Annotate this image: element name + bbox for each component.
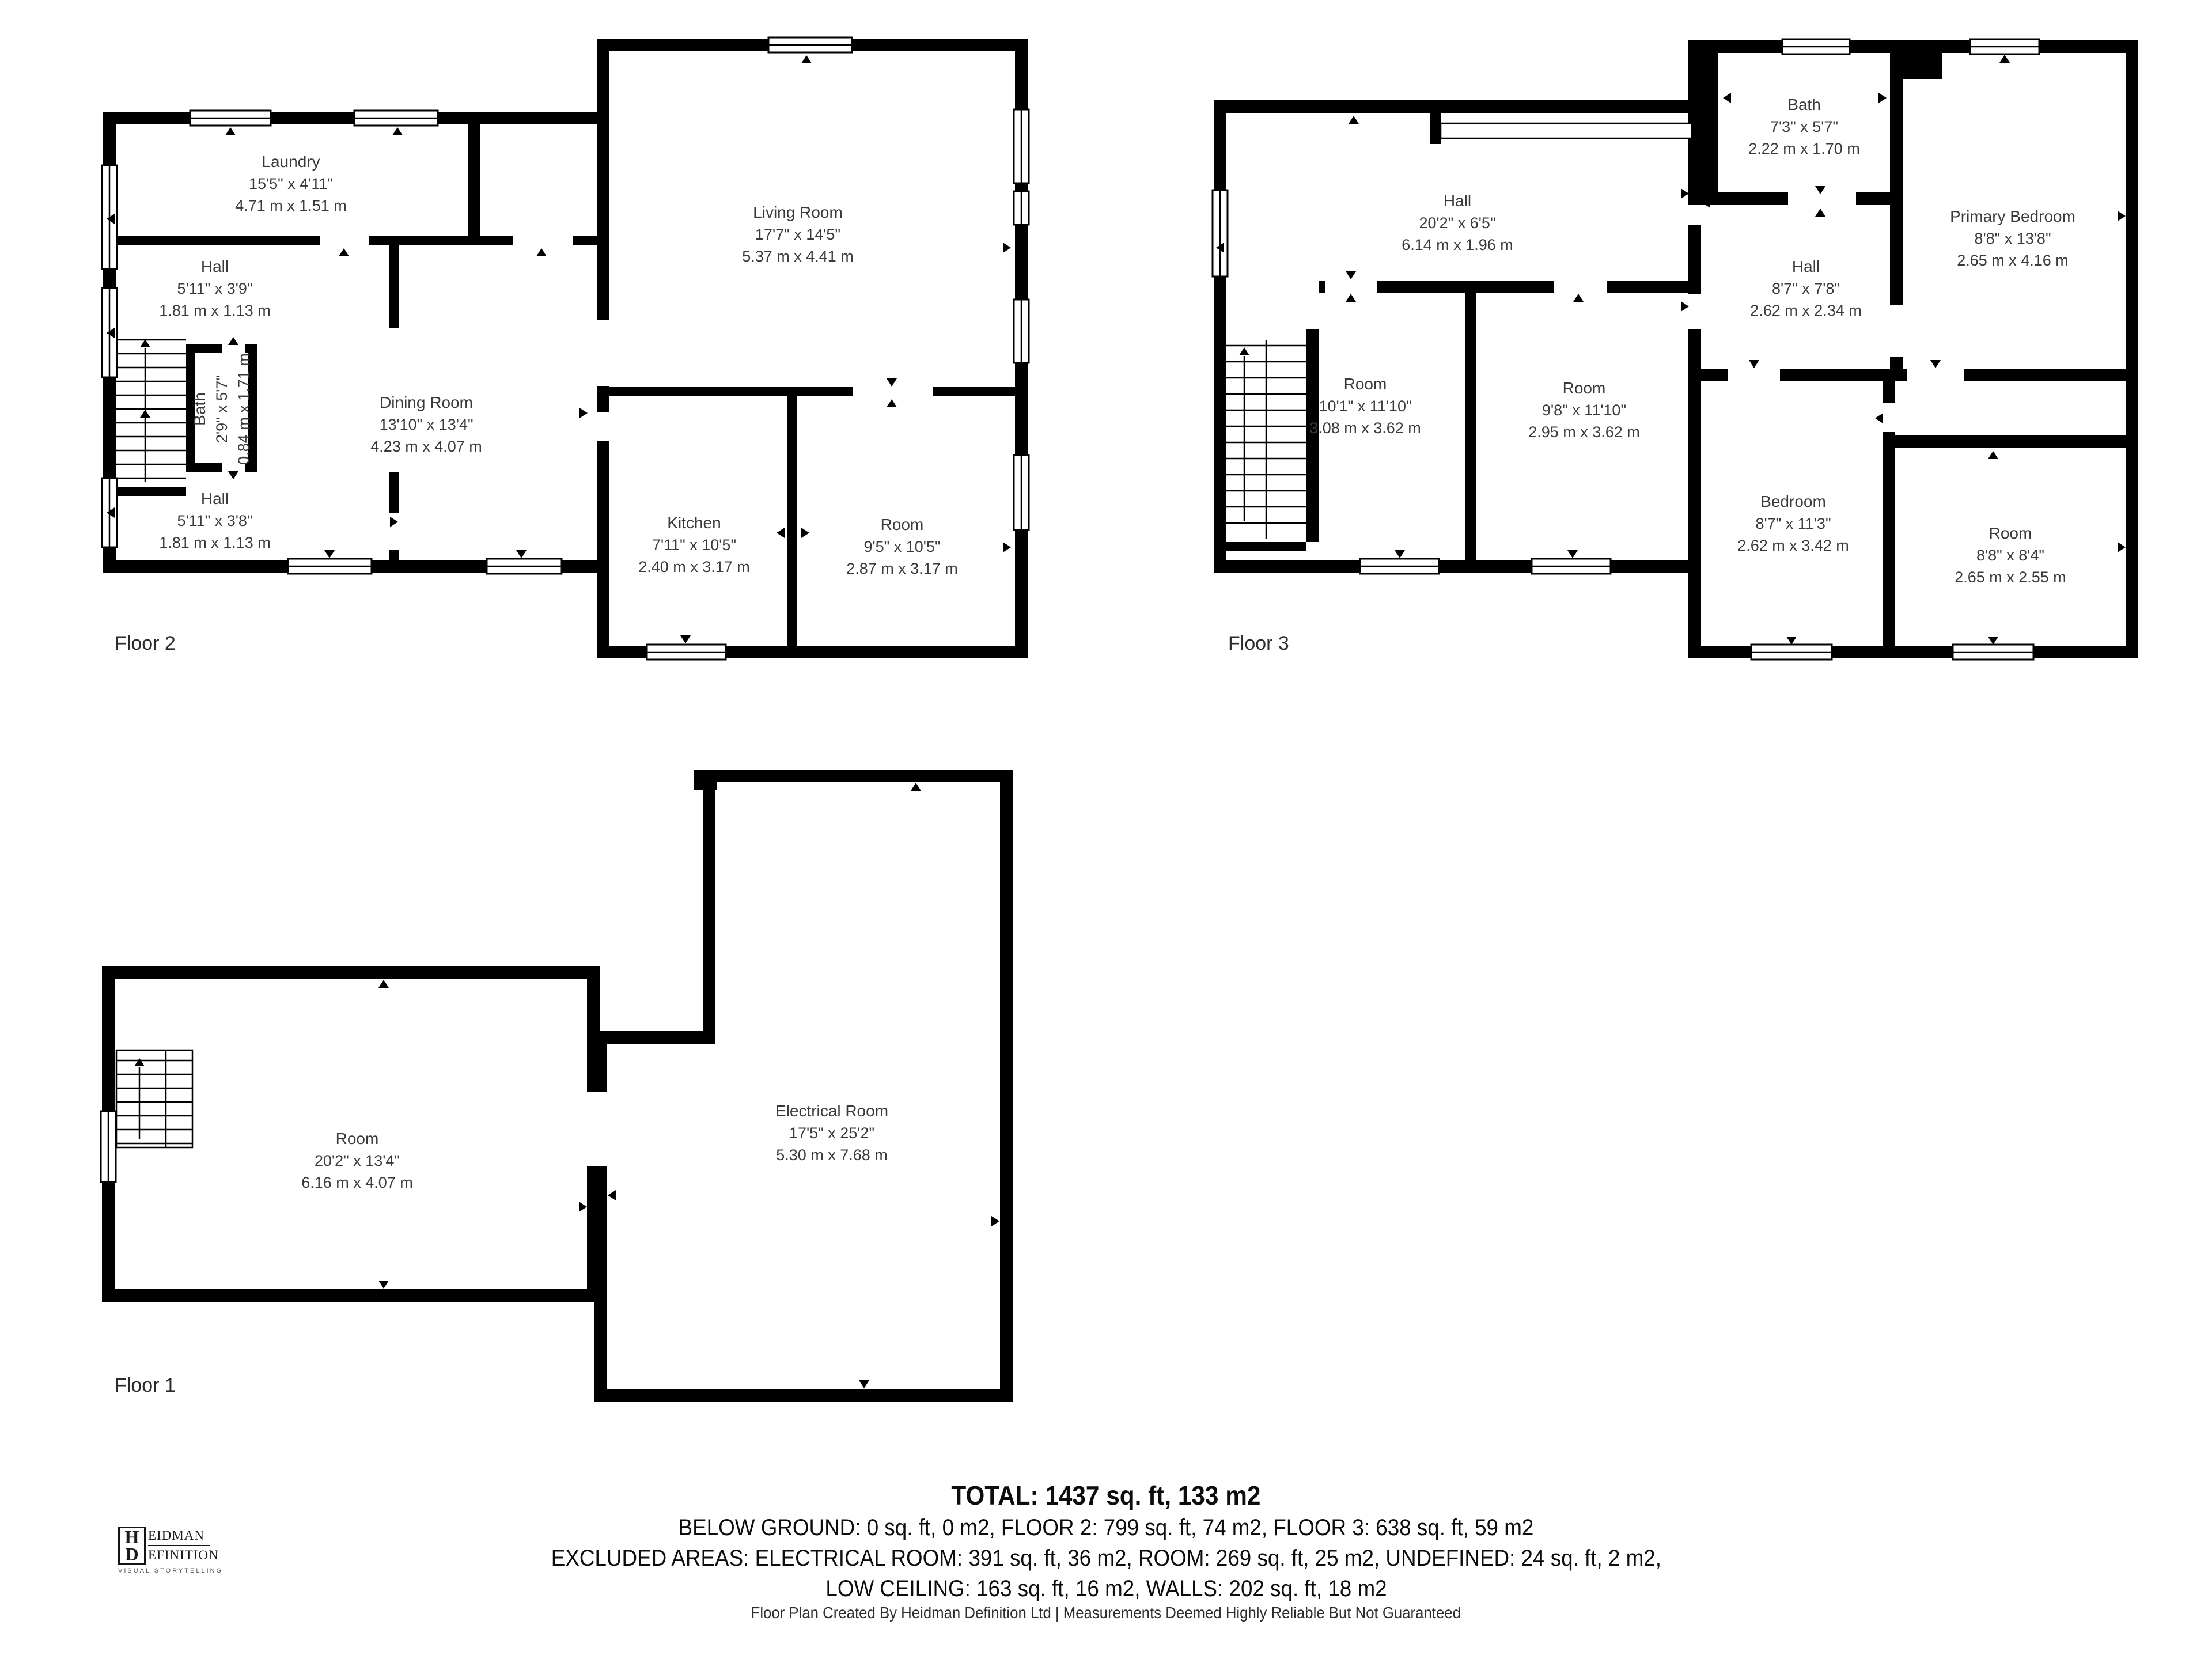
railing-low-ceiling-strip xyxy=(1441,123,1692,138)
floor1-windows xyxy=(101,1111,116,1182)
logo-monogram: H D xyxy=(118,1527,146,1565)
room-label-hall-top-f3: Hall 20'2" x 6'5" 6.14 m x 1.96 m xyxy=(1402,190,1513,256)
floorplan-canvas: Laundry 15'5" x 4'11" 4.71 m x 1.51 m Ha… xyxy=(0,0,2212,1659)
floor2-title: Floor 2 xyxy=(115,632,176,655)
room-label-bath-f2: Bath 2'9" x 5'7" 0.84 m x 1.71 m xyxy=(189,353,255,465)
floor2-stairs-icon xyxy=(116,339,186,482)
heidman-definition-logo: H D EIDMAN EFINITION VISUAL STORYTELLING xyxy=(118,1527,210,1574)
floor3-stairs-icon xyxy=(1226,340,1306,539)
footer-disclaimer: Floor Plan Created By Heidman Definition… xyxy=(0,1604,2212,1622)
room-label-room-f1: Room 20'2" x 13'4" 6.16 m x 4.07 m xyxy=(301,1128,413,1194)
logo-wordmark: EIDMAN EFINITION xyxy=(148,1527,210,1565)
room-label-room-f2: Room 9'5" x 10'5" 2.87 m x 3.17 m xyxy=(846,514,958,579)
floor1-title: Floor 1 xyxy=(115,1374,176,1397)
room-label-living: Living Room 17'7" x 14'5" 5.37 m x 4.41 … xyxy=(742,202,854,267)
room-label-room-mid-f3: Room 9'8" x 11'10" 2.95 m x 3.62 m xyxy=(1528,377,1640,443)
summary-line-excluded: EXCLUDED AREAS: ELECTRICAL ROOM: 391 sq.… xyxy=(0,1543,2212,1574)
room-label-kitchen: Kitchen 7'11" x 10'5" 2.40 m x 3.17 m xyxy=(638,512,750,578)
room-label-bath-f3: Bath 7'3" x 5'7" 2.22 m x 1.70 m xyxy=(1748,94,1860,160)
logo-tagline: VISUAL STORYTELLING xyxy=(118,1565,204,1574)
room-label-room-br-f3: Room 8'8" x 8'4" 2.65 m x 2.55 m xyxy=(1955,522,2066,588)
room-label-hall-mid-f3: Hall 8'7" x 7'8" 2.62 m x 2.34 m xyxy=(1750,256,1862,321)
room-label-laundry: Laundry 15'5" x 4'11" 4.71 m x 1.51 m xyxy=(235,151,347,217)
room-label-bedroom-f3: Bedroom 8'7" x 11'3" 2.62 m x 3.42 m xyxy=(1737,491,1849,556)
room-label-primary-bedroom: Primary Bedroom 8'8" x 13'8" 2.65 m x 4.… xyxy=(1950,206,2075,271)
room-label-dining: Dining Room 13'10" x 13'4" 4.23 m x 4.07… xyxy=(370,392,482,457)
room-label-hall-top-f2: Hall 5'11" x 3'9" 1.81 m x 1.13 m xyxy=(159,256,271,321)
room-label-electrical: Electrical Room 17'5" x 25'2" 5.30 m x 7… xyxy=(775,1100,888,1166)
summary-line-floors: BELOW GROUND: 0 sq. ft, 0 m2, FLOOR 2: 7… xyxy=(0,1513,2212,1543)
summary-total: TOTAL: 1437 sq. ft, 133 m2 xyxy=(0,1479,2212,1512)
floor1-walls xyxy=(102,770,1013,1402)
room-label-room-left-f3: Room 10'1" x 11'10" 3.08 m x 3.62 m xyxy=(1309,373,1421,439)
summary-line-lowceiling: LOW CEILING: 163 sq. ft, 16 m2, WALLS: 2… xyxy=(0,1574,2212,1604)
floor1-stairs-icon xyxy=(116,1050,192,1147)
room-label-hall-bottom-f2: Hall 5'11" x 3'8" 1.81 m x 1.13 m xyxy=(159,488,271,554)
floorplan-drawing xyxy=(0,0,2212,1659)
floor3-title: Floor 3 xyxy=(1228,632,1289,655)
